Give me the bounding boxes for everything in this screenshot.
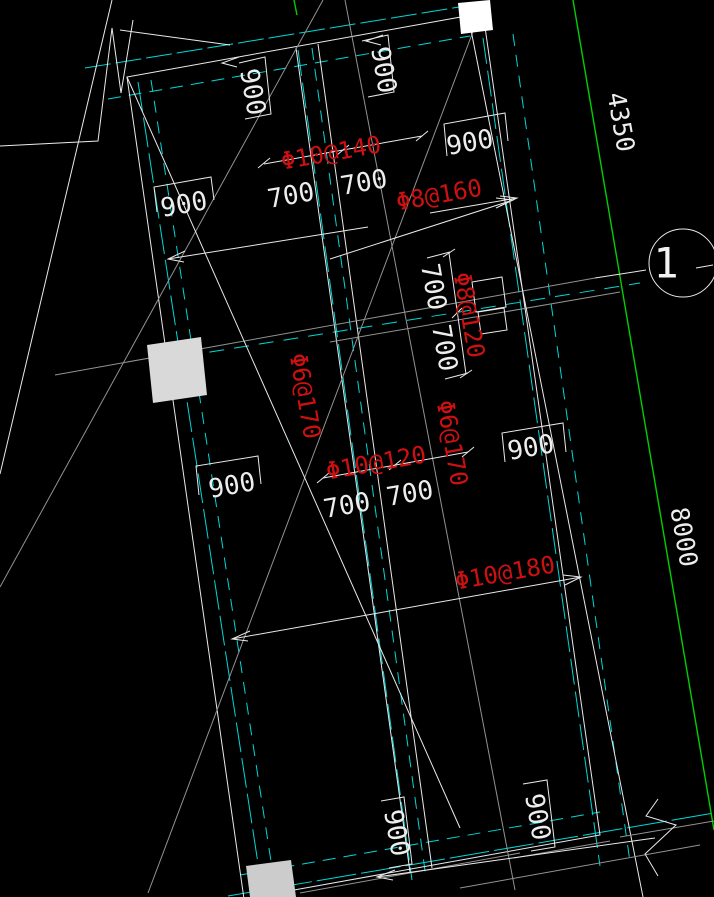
grid-bubble-label: 1	[653, 239, 678, 288]
dim-900-midright: 900	[505, 429, 556, 467]
dim-700-top-1: 700	[265, 177, 316, 215]
rebar-annotations: Φ10@140 Φ8@160 Φ8@120 Φ6@170 Φ10@120 Φ6@…	[279, 130, 557, 595]
rebar-label-left-vert: Φ6@170	[284, 351, 327, 441]
dim-700-mid-2: 700	[384, 475, 435, 513]
rebar-label-midright-vert: Φ6@170	[431, 398, 474, 488]
dim-900-bottomright-vert: 900	[518, 791, 556, 842]
column-topright-filled	[458, 0, 493, 34]
dim-900-topleft-vert: 900	[233, 66, 271, 117]
site-lines-bottom	[300, 821, 714, 893]
grid-bubble-1: 1	[649, 229, 714, 297]
dim-900-midleft: 900	[206, 467, 257, 505]
dim-700-vert-1: 700	[414, 261, 452, 312]
dim-700-vert-2: 700	[425, 322, 463, 373]
cad-canvas[interactable]: 1 900 900 900 900 900 900 900 900 700 70…	[0, 0, 714, 897]
dim-900-top-vert: 900	[364, 44, 402, 95]
column-bottom-filled	[246, 860, 296, 897]
dim-900-topright: 900	[444, 124, 495, 162]
rebar-label-top-right: Φ8@160	[394, 174, 484, 217]
grid-lines-green	[294, 0, 714, 830]
dim-4350: 4350	[601, 90, 640, 154]
dim-700-mid-1: 700	[321, 487, 372, 525]
dim-900-bottomleft-vert: 900	[377, 807, 415, 858]
dim-8000: 8000	[664, 505, 703, 569]
rebar-label-bottom: Φ10@180	[453, 550, 557, 595]
axis-1-line	[55, 270, 646, 375]
column-left-filled	[147, 337, 207, 403]
dim-900-left: 900	[158, 186, 209, 224]
